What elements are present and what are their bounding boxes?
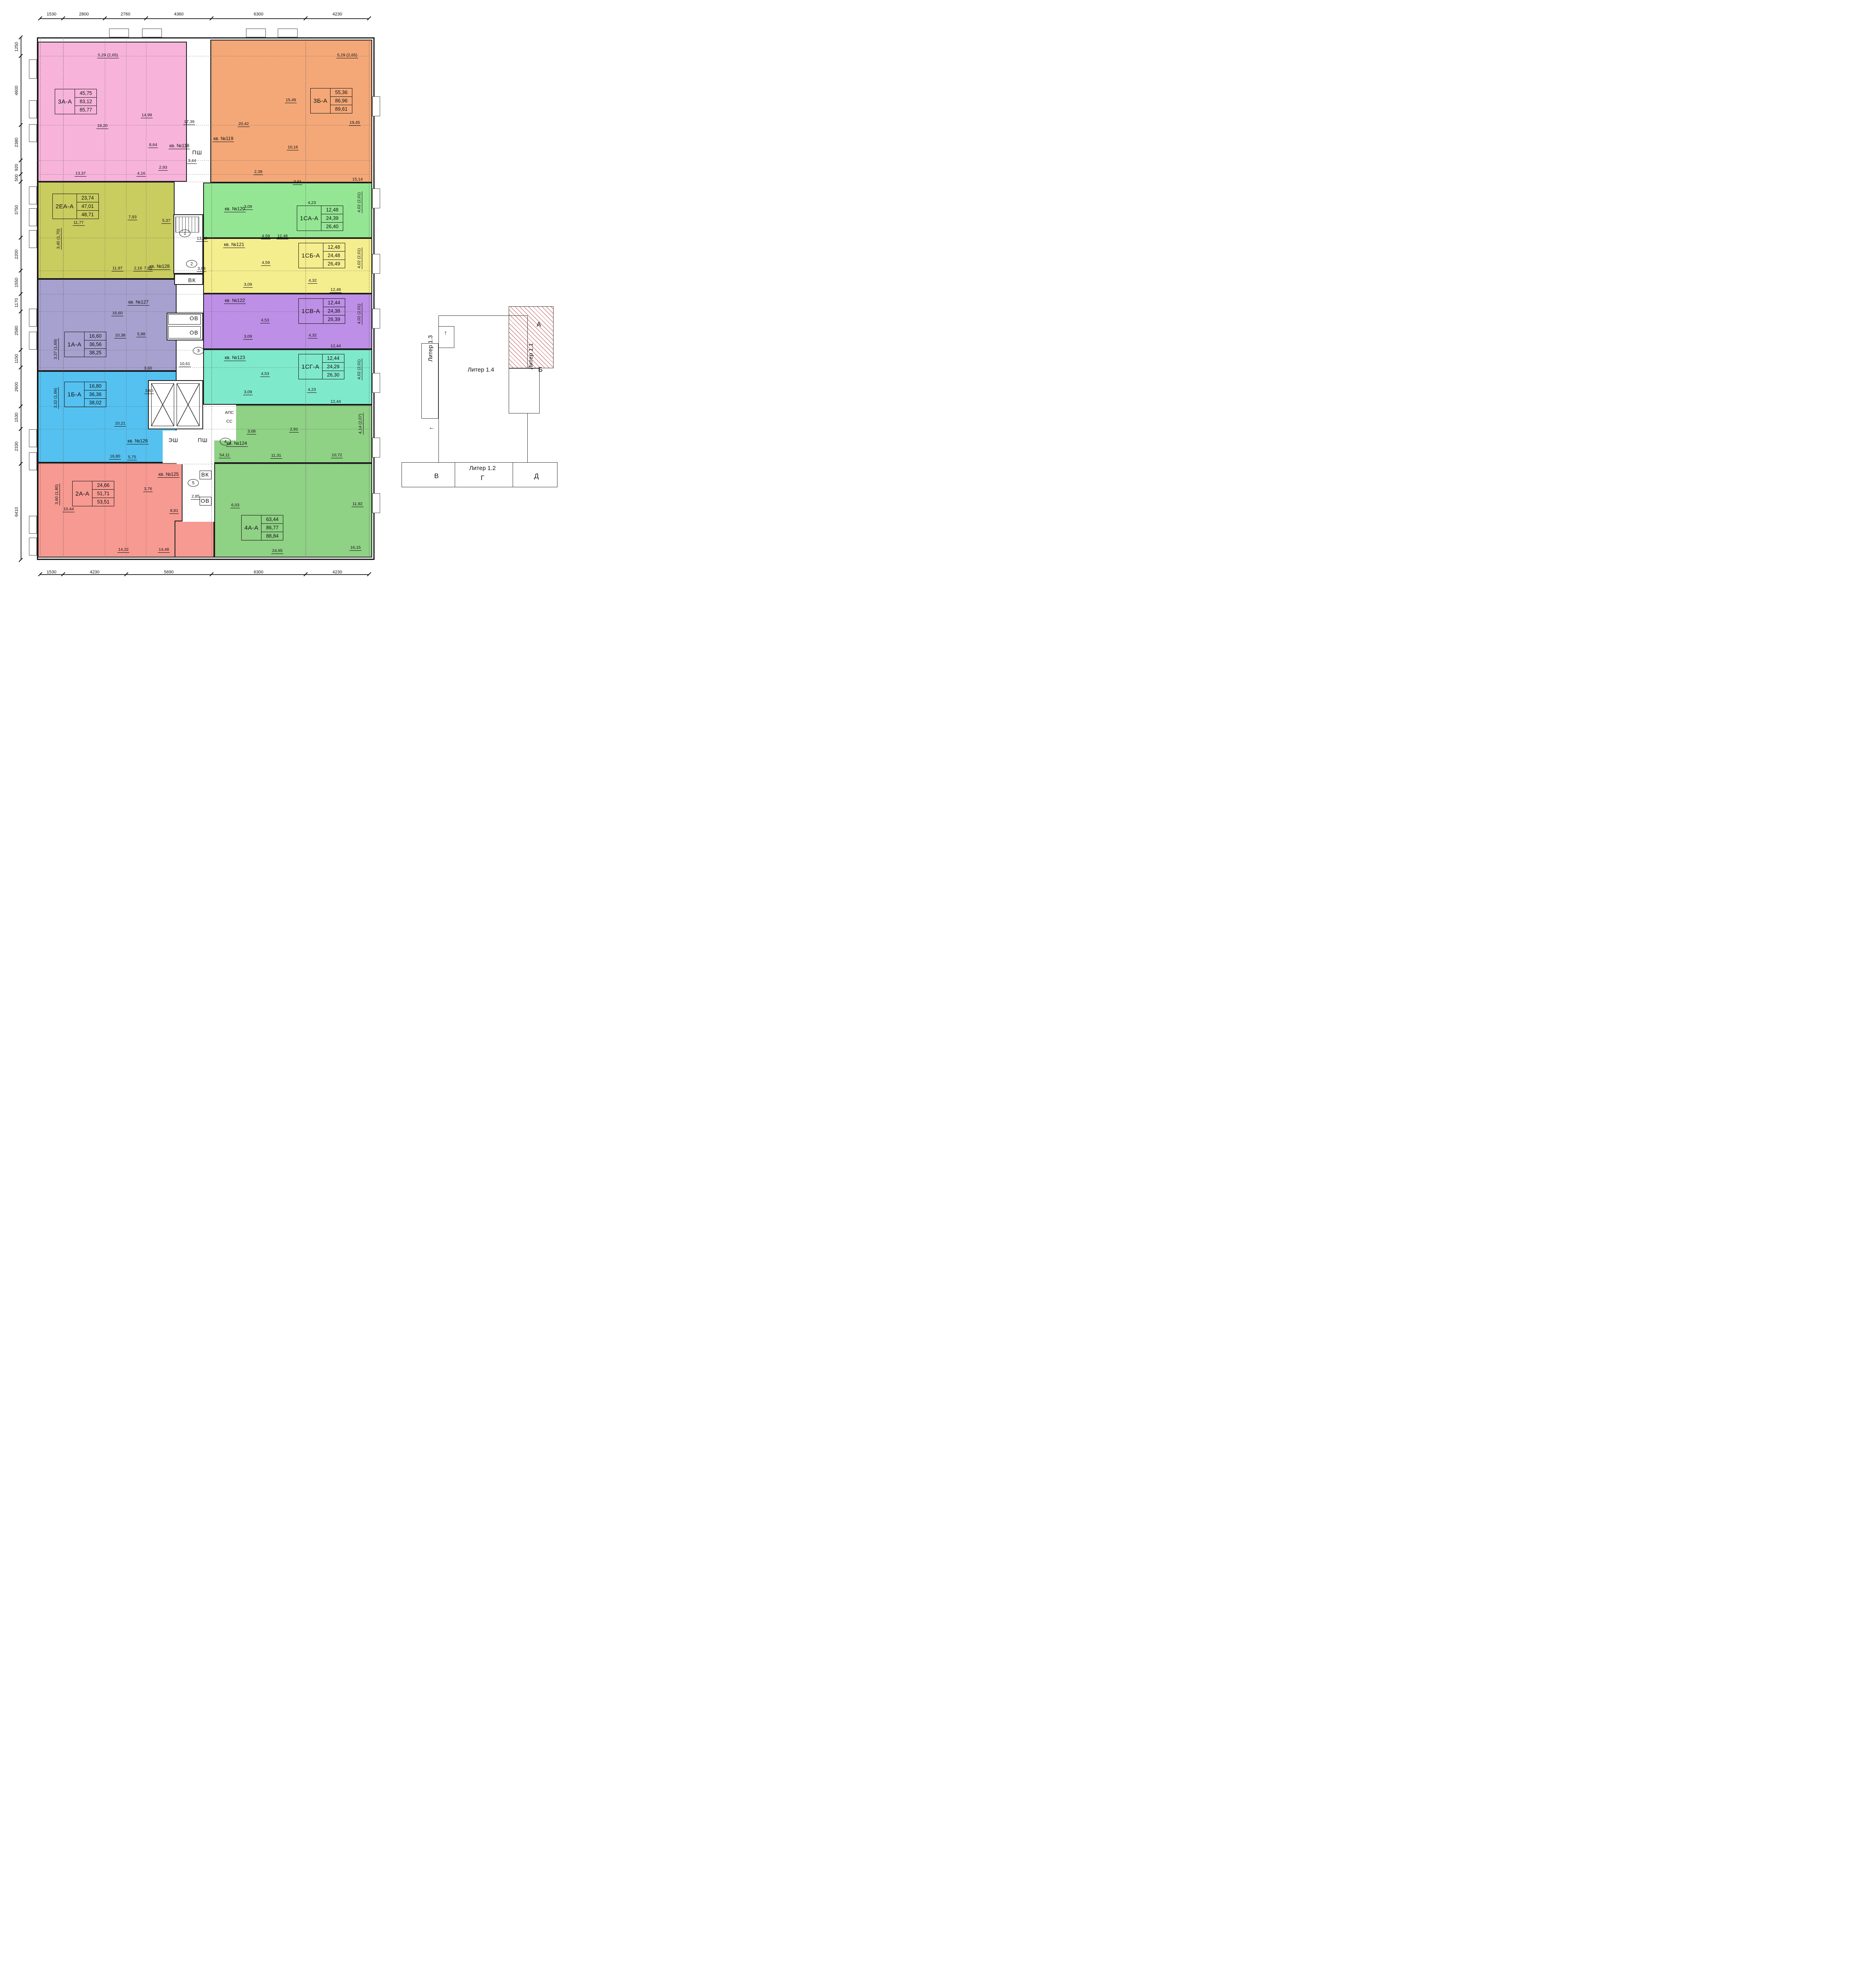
keyplan-section-a: А — [536, 321, 541, 329]
core-label: ОВ — [201, 498, 210, 504]
flat-number-125: кв. №125 — [158, 471, 179, 478]
area-value: 47,01 — [77, 202, 99, 211]
flat-number-120: кв. №120 — [224, 206, 246, 212]
balcony — [109, 29, 129, 37]
balcony — [29, 208, 37, 226]
stair-node-circle-3: 3 — [193, 347, 204, 355]
area-value: 45,75 — [75, 89, 97, 98]
dimension-annotation: 3,40 (1,70) — [56, 228, 62, 250]
core-label: АПС — [225, 410, 234, 415]
dimension-annotation: 3,64 — [197, 266, 206, 272]
dimension-annotation: 2,91 — [289, 427, 299, 433]
balcony — [29, 230, 37, 248]
dimension-left-value: 3750 — [14, 205, 19, 214]
dimension-annotation: 12,48 — [330, 287, 342, 293]
dimension-annotation: 2,93 — [158, 165, 168, 171]
grid-line — [211, 37, 212, 558]
dimension-annotation: 10,72 — [331, 453, 343, 458]
area-value: 12,48 — [321, 206, 343, 214]
dimension-annotation: 4,02 (2,01) — [357, 359, 362, 381]
area-value: 24,39 — [321, 214, 343, 223]
dimension-annotation: 7,93 — [128, 215, 137, 220]
balcony — [29, 124, 37, 142]
keyplan-section-g: Г — [481, 474, 484, 482]
core-label: ЭШ — [169, 437, 179, 443]
balcony — [246, 29, 266, 37]
apartment-label: 2ЕА-А — [52, 194, 77, 219]
dimension-left-value: 1150 — [14, 354, 19, 363]
dimension-bottom-value: 6300 — [254, 570, 263, 575]
stair-node-circle-2: 2 — [186, 260, 197, 268]
apartment-card-2a-a: 2А-А 24,66 51,71 53,51 — [72, 481, 114, 506]
dimension-left-value: 2200 — [14, 250, 19, 259]
dimension-annotation: 3,60 — [143, 366, 153, 371]
area-value: 86,96 — [331, 97, 352, 105]
dimension-annotation: 12,44 — [330, 399, 342, 405]
apartment-label: 1А-А — [64, 332, 85, 357]
dimension-left-value: 1170 — [14, 298, 19, 308]
area-value: 86,77 — [261, 524, 283, 532]
dimension-annotation: 13,00 — [196, 236, 208, 242]
balcony — [372, 254, 380, 274]
balcony — [29, 538, 37, 556]
keyplan-cell-v — [402, 463, 455, 487]
dimension-annotation: 5,75 — [127, 455, 137, 460]
room-4a-a — [214, 463, 372, 558]
apartment-label: 1СВ-А — [298, 298, 323, 324]
core-label: ОВ — [190, 329, 198, 336]
area-value: 12,44 — [323, 354, 344, 363]
area-value: 53,51 — [92, 498, 114, 506]
dimension-left-value: 1250 — [14, 42, 19, 51]
dimension-annotation: 16,15 — [350, 545, 361, 551]
dimension-annotation: 4,53 — [260, 318, 270, 323]
dimension-annotation: 5,29 (2,65) — [97, 53, 119, 58]
dimension-left-line — [21, 37, 21, 560]
dimension-annotation: 5,29 (2,65) — [336, 53, 358, 58]
dimension-annotation: 8,64 — [148, 142, 158, 148]
area-value: 36,36 — [85, 390, 106, 399]
dimension-annotation: 12,44 — [330, 344, 342, 349]
dimension-annotation: 5,37 — [161, 218, 171, 224]
flat-number-123: кв. №123 — [224, 355, 246, 361]
grid-line — [126, 37, 127, 558]
dimension-left-value: 2380 — [14, 138, 19, 147]
area-value: 12,44 — [323, 298, 345, 307]
keyplan-label-liter12: Литер 1.2 — [469, 465, 496, 472]
stair-node-circle-5: 5 — [188, 479, 199, 487]
arrow-up-icon: ↑ — [444, 330, 447, 337]
apartment-card-1sb-a: 1СБ-А 12,48 24,48 26,49 — [298, 243, 345, 268]
balcony — [372, 373, 380, 393]
grid-line — [306, 37, 306, 558]
balcony — [29, 309, 37, 327]
grid-line — [37, 56, 372, 56]
dimension-annotation: 14,22 — [117, 547, 129, 553]
grid-line — [37, 294, 372, 294]
stair-node-circle-1: 1 — [179, 230, 190, 237]
dimension-top-value: 4230 — [333, 12, 342, 17]
area-value: 23,74 — [77, 194, 99, 202]
grid-line — [37, 560, 372, 560]
grid-line — [63, 37, 63, 558]
dimension-annotation: 20,42 — [238, 121, 250, 127]
area-value: 63,44 — [261, 515, 283, 524]
dimension-annotation: 3,09 — [243, 334, 253, 340]
dimension-annotation: 4,23 — [307, 200, 317, 206]
architectural-floor-plan-sheet: { "dimensions": { "top": ["1530","2800",… — [0, 0, 586, 621]
area-value: 16,80 — [85, 382, 106, 390]
core-label: СС — [226, 419, 232, 424]
area-value: 83,12 — [75, 98, 97, 106]
keyplan-section-d: Д — [534, 472, 539, 480]
balcony — [142, 29, 162, 37]
core-label: ВК — [201, 471, 209, 478]
balcony — [372, 493, 380, 513]
dimension-annotation: 16,80 — [109, 454, 121, 459]
area-value: 12,48 — [323, 243, 345, 252]
dimension-left-value: 920 — [14, 164, 19, 171]
apartment-label: 2А-А — [72, 481, 92, 506]
dimension-annotation: 4,23 — [307, 387, 317, 393]
dimension-top-value: 6300 — [254, 12, 263, 17]
dimension-annotation: 11,77 — [73, 220, 85, 226]
apartment-label: 3Б-А — [310, 88, 331, 113]
dimension-annotation: 2,16 — [133, 266, 143, 271]
balcony — [372, 438, 380, 458]
floor-plan: 3А-А 45,75 83,12 85,77 3Б-А 55,36 86,96 … — [0, 0, 586, 621]
dimension-annotation: 18,20 — [96, 123, 108, 129]
dimension-annotation: 3,09 — [243, 204, 253, 210]
dimension-left-value: 1530 — [14, 413, 19, 422]
keyplan-section-v: В — [434, 472, 438, 480]
dimension-annotation: 2,85 — [191, 494, 200, 500]
dimension-annotation: 12,48 — [277, 234, 288, 239]
balcony — [29, 452, 37, 470]
dimension-annotation: 8,81 — [169, 508, 179, 514]
balcony — [372, 309, 380, 329]
apartment-card-1sv-a: 1СВ-А 12,44 24,38 26,39 — [298, 298, 345, 324]
corridor-shafts — [163, 431, 214, 463]
arrow-left-icon: ← — [429, 424, 435, 431]
dimension-left-value: 2330 — [14, 442, 19, 451]
dimension-top-value: 2760 — [121, 12, 130, 17]
grid-line — [105, 37, 105, 558]
dimension-left-value: 2600 — [14, 382, 19, 391]
area-value: 26,30 — [323, 371, 344, 379]
flat-number-126: кв. №126 — [127, 438, 148, 444]
grid-line — [40, 37, 40, 558]
dimension-annotation: 24,65 — [271, 548, 283, 554]
dimension-annotation: 4,16 — [136, 171, 146, 177]
area-value: 26,40 — [321, 223, 343, 231]
apartment-card-2ea-a: 2ЕА-А 23,74 47,01 48,71 — [52, 194, 99, 219]
area-value: 55,36 — [331, 88, 352, 97]
dimension-annotation: 10,16 — [287, 145, 299, 150]
dimension-annotation: 14,48 — [158, 547, 170, 553]
keyplan-section-b-outline — [509, 368, 540, 413]
dimension-annotation: 4,02 (2,01) — [357, 192, 362, 213]
dimension-annotation: 3,37 (1,69) — [53, 338, 59, 360]
area-value: 24,48 — [323, 252, 345, 260]
balcony — [29, 332, 37, 350]
dimension-annotation: 3,60 — [144, 388, 154, 394]
area-value: 26,49 — [323, 260, 345, 268]
area-value: 38,25 — [85, 349, 106, 357]
area-value: 24,66 — [92, 481, 114, 490]
dimension-left-value: 500 — [14, 174, 19, 181]
apartment-label: 1СБ-А — [298, 243, 323, 268]
balcony — [29, 60, 37, 79]
elevator-shaft-icon — [151, 383, 174, 426]
dimension-annotation: 17,39 — [183, 119, 195, 125]
keyplan-label-liter11: Литер 1.1 — [528, 343, 534, 370]
keyplan-section-b: Б — [538, 366, 542, 374]
balcony — [372, 188, 380, 208]
dimension-annotation: 11,92 — [352, 502, 363, 507]
core-label: ВК — [188, 277, 196, 283]
apartment-card-1b-a: 1Б-А 16,80 36,36 38,02 — [64, 382, 106, 407]
dimension-annotation: 4,32 — [308, 333, 317, 338]
area-value: 24,29 — [323, 363, 344, 371]
keyplan-label-liter14: Литер 1.4 — [468, 367, 494, 373]
area-value: 26,39 — [323, 315, 345, 324]
dimension-annotation: 10,44 — [63, 507, 75, 512]
dimension-left-value: 6410 — [14, 507, 19, 517]
core-label: ОВ — [190, 315, 198, 321]
dimension-left-value: 1550 — [14, 277, 19, 287]
area-value: 89,61 — [331, 105, 352, 113]
keyplan-label-liter13: Литер 1.3 — [427, 335, 434, 362]
flat-number-127: кв. №127 — [127, 299, 149, 306]
dimension-bottom-value: 5690 — [164, 570, 173, 575]
dimension-top-value: 2800 — [79, 12, 88, 17]
dimension-annotation: 4,32 — [308, 278, 317, 284]
grid-line — [37, 174, 372, 175]
area-value: 16,60 — [85, 332, 106, 340]
apartment-card-4a-a: 4А-А 63,44 86,77 88,84 — [241, 515, 283, 540]
dimension-bottom-value: 1530 — [47, 570, 56, 575]
area-value: 51,71 — [92, 490, 114, 498]
dimension-top-line — [40, 18, 369, 19]
dimension-annotation: 4,14 (2,07) — [358, 413, 363, 435]
balcony — [372, 96, 380, 116]
stair-node-circle-4: 4 — [220, 438, 231, 446]
apartment-label: 1СА-А — [297, 206, 321, 231]
dimension-annotation: 3,44 — [187, 158, 197, 164]
dimension-annotation: 6,03 — [231, 503, 240, 508]
dimension-annotation: 11,97 — [111, 266, 123, 271]
dimension-bottom-value: 4230 — [333, 570, 342, 575]
flat-number-118: кв. №118 — [169, 143, 190, 149]
dimension-annotation: 13,37 — [75, 171, 86, 177]
grid-line — [37, 37, 372, 38]
balcony — [29, 516, 37, 534]
dimension-top-value: 4360 — [174, 12, 183, 17]
flat-number-119: кв. №119 — [213, 136, 234, 142]
apartment-card-1a-a: 1А-А 16,60 36,56 38,25 — [64, 332, 106, 357]
dimension-annotation: 10,38 — [114, 333, 126, 338]
dimension-left-value: 2580 — [14, 326, 19, 335]
dimension-annotation: 5,98 — [136, 332, 146, 337]
dimension-top-value: 1530 — [47, 12, 56, 17]
dimension-bottom-value: 4230 — [90, 570, 99, 575]
dimension-annotation: 3,32 (1,66) — [53, 387, 59, 409]
dimension-annotation: 3,76 — [143, 486, 153, 492]
dimension-annotation: 11,31 — [270, 453, 282, 459]
flat-number-121: кв. №121 — [223, 242, 245, 248]
area-value: 24,38 — [323, 307, 345, 315]
dimension-annotation: 3,09 — [243, 390, 253, 395]
balcony — [29, 429, 37, 447]
area-value: 85,77 — [75, 106, 97, 114]
dimension-annotation: 15,14 — [352, 177, 363, 183]
grid-line — [37, 125, 372, 125]
area-value: 36,56 — [85, 340, 106, 349]
grid-line — [37, 160, 372, 161]
core-label: ПШ — [192, 149, 202, 156]
apartment-label: 3А-А — [55, 89, 75, 114]
dimension-annotation: 2,39 — [254, 169, 263, 175]
dimension-annotation: 4,59 — [261, 260, 271, 266]
dimension-annotation: 7,81 — [143, 266, 153, 271]
grid-line — [369, 37, 369, 558]
dimension-annotation: 4,59 — [261, 234, 271, 239]
room-2a-a-kitchen — [175, 521, 214, 558]
dimension-annotation: 54,11 — [219, 453, 231, 458]
core-label: ПШ — [198, 437, 208, 443]
dimension-annotation: 3,91 — [293, 179, 302, 185]
apartment-card-3b-a: 3Б-А 55,36 86,96 89,61 — [310, 88, 352, 113]
flat-number-122: кв. №122 — [224, 298, 246, 304]
apartment-card-3a-a: 3А-А 45,75 83,12 85,77 — [55, 89, 97, 114]
dimension-annotation: 10,61 — [179, 361, 191, 367]
apartment-card-1sg-a: 1СГ-А 12,44 24,29 26,30 — [298, 354, 344, 379]
balcony — [278, 29, 298, 37]
dimension-annotation: 3,08 — [247, 429, 256, 434]
dimension-left-value: 4600 — [14, 86, 19, 95]
dimension-annotation: 15,49 — [285, 98, 297, 103]
dimension-annotation: 19,45 — [349, 120, 361, 126]
grid-line — [37, 464, 372, 464]
area-value: 38,02 — [85, 399, 106, 407]
area-value: 88,84 — [261, 532, 283, 540]
grid-line — [37, 182, 372, 182]
dimension-annotation: 4,02 (2,01) — [357, 303, 362, 325]
dimension-annotation: 14,99 — [141, 113, 153, 118]
dimension-annotation: 3,09 — [243, 282, 253, 288]
dimension-annotation: 4,53 — [260, 371, 270, 377]
apartment-label: 4А-А — [241, 515, 261, 540]
balcony — [29, 186, 37, 204]
apartment-label: 1Б-А — [64, 382, 85, 407]
dimension-annotation: 16,60 — [111, 311, 123, 316]
dimension-annotation: 10,21 — [114, 421, 126, 427]
elevator-shaft-icon — [177, 383, 200, 426]
dimension-annotation: 4,02 (2,01) — [357, 248, 362, 269]
dimension-annotation: 3,60 (1,80) — [54, 484, 60, 506]
area-value: 48,71 — [77, 211, 99, 219]
grid-line — [37, 429, 372, 429]
apartment-card-1sa-a: 1СА-А 12,48 24,39 26,40 — [297, 206, 343, 231]
balcony — [29, 100, 37, 118]
apartment-label: 1СГ-А — [298, 354, 323, 379]
